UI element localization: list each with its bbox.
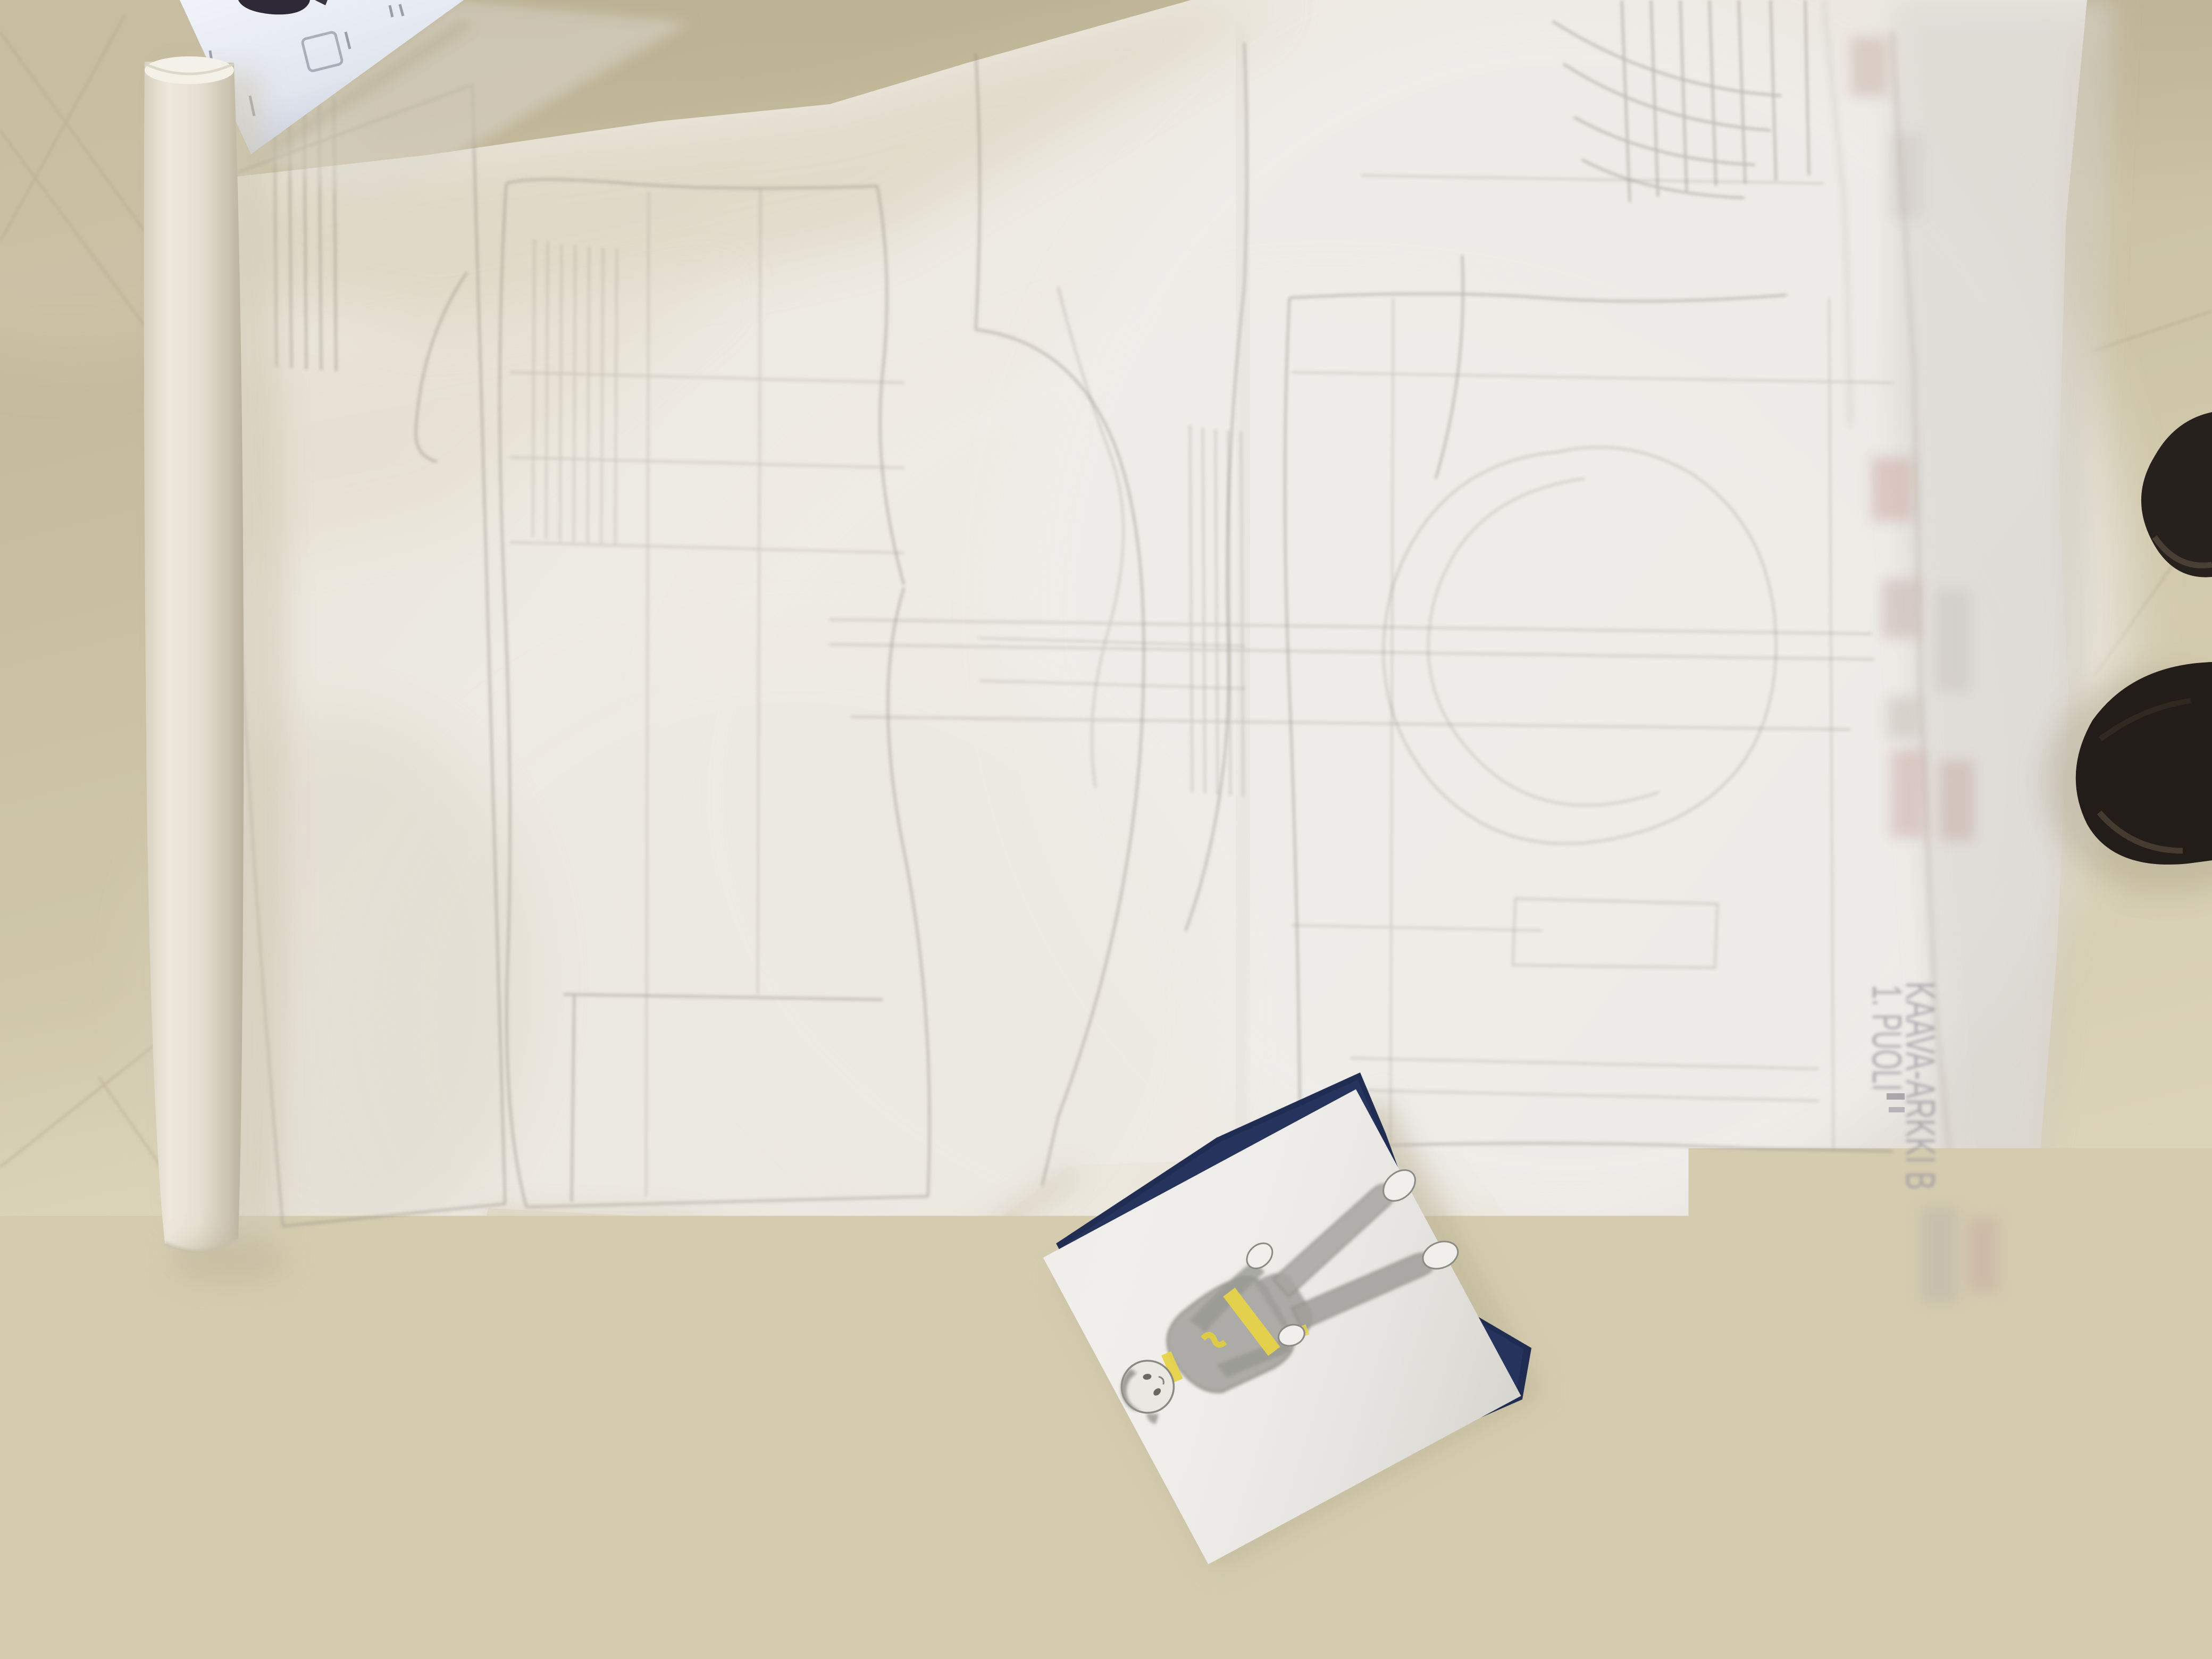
svg-text:1. PUOLI: 1. PUOLI <box>1864 985 1911 1091</box>
